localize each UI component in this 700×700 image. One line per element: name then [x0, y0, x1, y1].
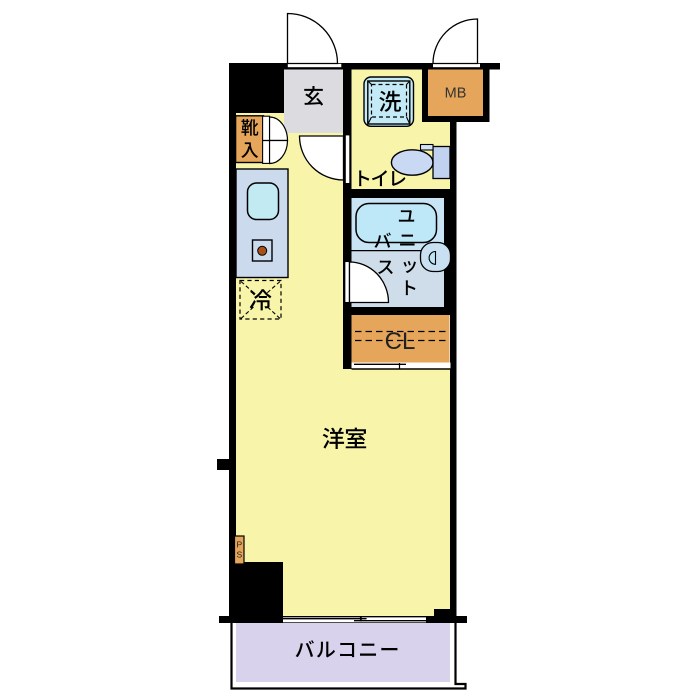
svg-text:S: S — [236, 550, 242, 560]
svg-text:CL: CL — [385, 328, 416, 355]
svg-text:MB: MB — [445, 86, 467, 102]
svg-text:P: P — [236, 540, 242, 550]
